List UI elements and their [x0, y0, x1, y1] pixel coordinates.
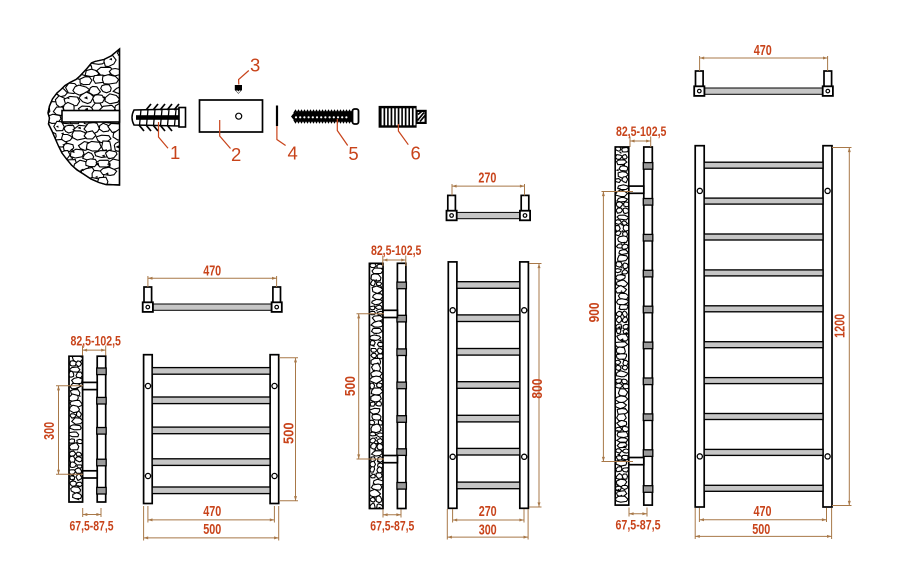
svg-text:82,5-102,5: 82,5-102,5	[616, 124, 667, 139]
svg-text:1200: 1200	[832, 314, 848, 338]
svg-text:3: 3	[250, 55, 260, 76]
svg-text:470: 470	[754, 43, 772, 59]
svg-text:300: 300	[42, 422, 58, 440]
svg-text:67,5-87,5: 67,5-87,5	[616, 518, 661, 533]
svg-text:800: 800	[530, 379, 546, 399]
svg-text:470: 470	[203, 504, 221, 520]
svg-text:900: 900	[587, 302, 603, 322]
svg-text:270: 270	[479, 504, 497, 520]
svg-text:500: 500	[203, 522, 221, 538]
svg-text:2: 2	[231, 144, 241, 165]
svg-text:470: 470	[754, 504, 772, 520]
svg-text:67,5-87,5: 67,5-87,5	[370, 518, 414, 533]
svg-text:67,5-87,5: 67,5-87,5	[70, 519, 114, 534]
svg-text:470: 470	[203, 263, 221, 279]
svg-text:82,5-102,5: 82,5-102,5	[371, 243, 422, 258]
svg-text:5: 5	[348, 143, 358, 164]
svg-text:270: 270	[478, 170, 496, 186]
svg-text:500: 500	[752, 522, 770, 538]
svg-text:500: 500	[343, 376, 359, 396]
svg-text:300: 300	[479, 522, 497, 538]
svg-text:4: 4	[288, 143, 298, 164]
svg-text:82,5-102,5: 82,5-102,5	[70, 333, 121, 348]
svg-text:1: 1	[170, 142, 180, 163]
svg-text:6: 6	[411, 143, 421, 164]
svg-text:500: 500	[282, 422, 298, 444]
